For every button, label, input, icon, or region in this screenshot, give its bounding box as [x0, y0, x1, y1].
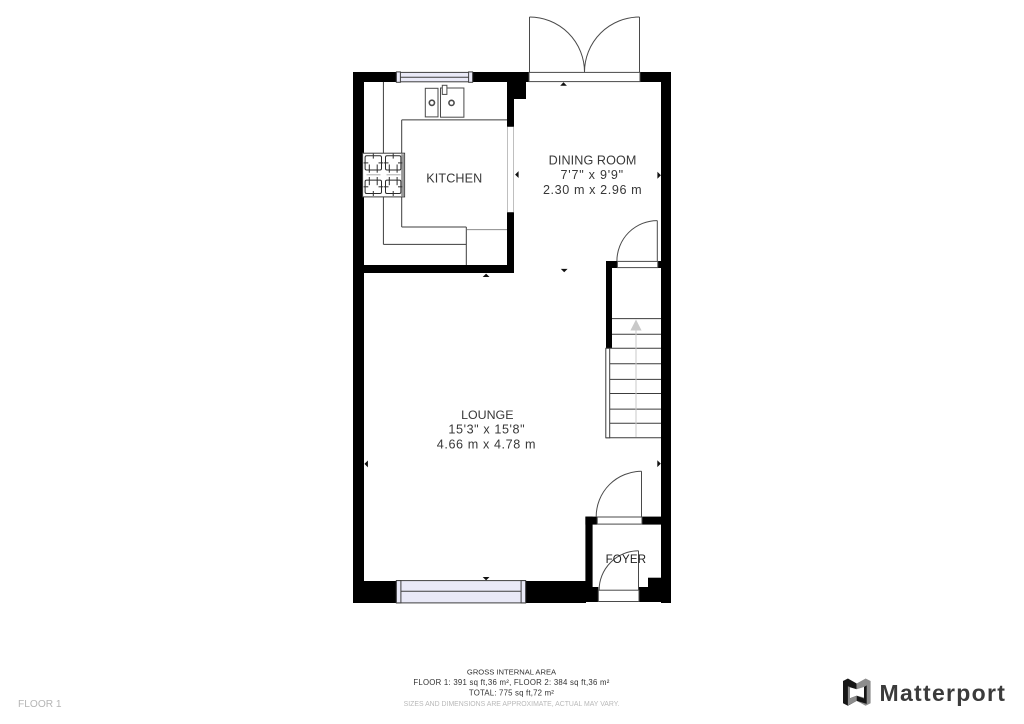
svg-text:KITCHEN: KITCHEN	[426, 171, 482, 185]
svg-text:15'3" x 15'8": 15'3" x 15'8"	[448, 423, 525, 437]
svg-text:LOUNGE: LOUNGE	[461, 408, 513, 422]
svg-text:4.66 m x 4.78 m: 4.66 m x 4.78 m	[437, 437, 536, 451]
svg-text:FOYER: FOYER	[606, 554, 647, 566]
svg-text:2.30 m x 2.96 m: 2.30 m x 2.96 m	[543, 183, 642, 197]
svg-text:7'7" x 9'9": 7'7" x 9'9"	[561, 168, 624, 182]
svg-text:TOTAL: 775 sq ft,72 m²: TOTAL: 775 sq ft,72 m²	[469, 689, 554, 698]
svg-text:FLOOR 1: FLOOR 1	[18, 699, 62, 710]
svg-text:FLOOR 1: 391 sq ft,36 m², FLOO: FLOOR 1: 391 sq ft,36 m², FLOOR 2: 384 s…	[413, 678, 609, 687]
svg-text:GROSS INTERNAL AREA: GROSS INTERNAL AREA	[467, 667, 557, 676]
svg-text:SIZES AND DIMENSIONS ARE APPRO: SIZES AND DIMENSIONS ARE APPROXIMATE, AC…	[404, 701, 620, 708]
svg-text:Matterport: Matterport	[880, 680, 1007, 706]
svg-text:DINING ROOM: DINING ROOM	[549, 153, 637, 167]
